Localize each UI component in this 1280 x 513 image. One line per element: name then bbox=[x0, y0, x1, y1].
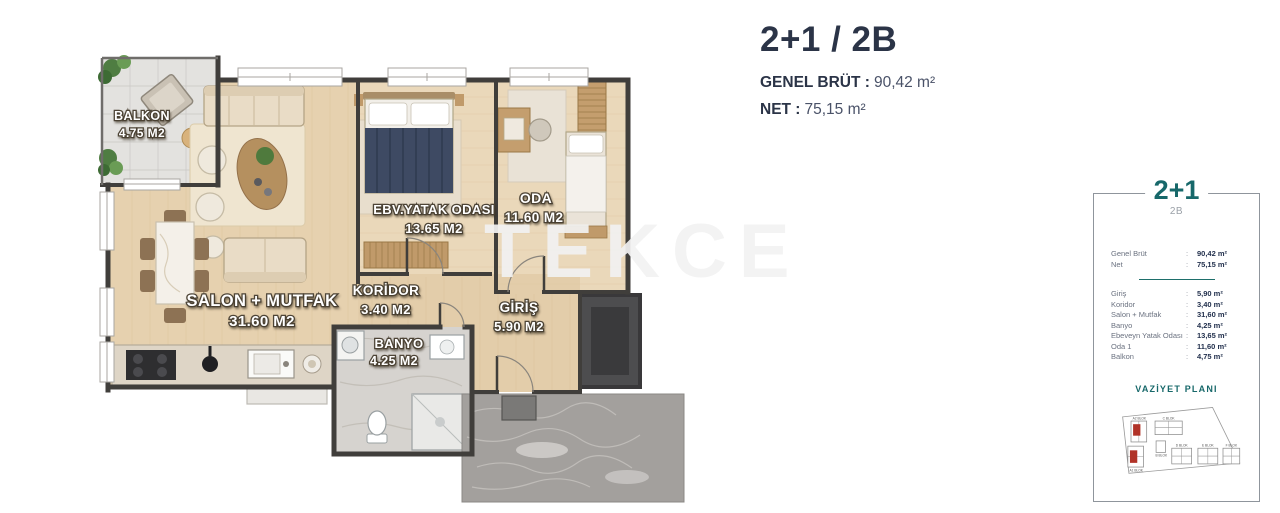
pan bbox=[202, 356, 218, 372]
spec-row: Ebeveyn Yatak Odası:13,65 m² bbox=[1111, 331, 1244, 342]
summary-rows: Genel Brüt:90,42 m² Net:75,15 m² bbox=[1094, 249, 1259, 270]
spec-row: Giriş:5,90 m² bbox=[1111, 289, 1244, 300]
window-icon bbox=[100, 192, 114, 250]
common-hall bbox=[462, 394, 684, 502]
kitchen-ledge bbox=[247, 388, 327, 404]
card-subtitle: 2B bbox=[1094, 206, 1259, 217]
site-plan-title: VAZİYET PLANI bbox=[1094, 384, 1259, 394]
spec-row: Koridor:3,40 m² bbox=[1111, 300, 1244, 311]
block-b bbox=[1156, 440, 1165, 452]
room-area: 3.40 M2 bbox=[361, 302, 411, 317]
spec-row: Net:75,15 m² bbox=[1111, 260, 1244, 271]
toilet bbox=[367, 411, 387, 443]
spec-row: Oda 1:11,60 m² bbox=[1111, 342, 1244, 353]
highlight-unit bbox=[1129, 450, 1136, 463]
plan-header: 2+1 / 2B GENEL BRÜT :90,42 m² NET :75,15… bbox=[760, 18, 935, 119]
unit-summary-card: 2+1 2B Genel Brüt:90,42 m² Net:75,15 m² … bbox=[1093, 193, 1260, 502]
sofa-small bbox=[224, 238, 306, 282]
floor-plan-page: BALKON 4.75 M2 SALON + MUTFAK 31.60 M2 K… bbox=[0, 0, 1280, 513]
room-label: BANYO bbox=[375, 336, 424, 351]
window-icon bbox=[510, 68, 588, 86]
svg-text:E BLOK: E BLOK bbox=[1201, 443, 1214, 447]
room-area: 5.90 M2 bbox=[494, 319, 544, 334]
room-area: 13.65 M2 bbox=[405, 221, 462, 236]
svg-text:D BLOK: D BLOK bbox=[1175, 443, 1188, 447]
net-area-label: NET : bbox=[760, 101, 800, 118]
page-title: 2+1 / 2B bbox=[760, 18, 935, 62]
room-label: ODA bbox=[520, 190, 552, 206]
room-area: 31.60 M2 bbox=[229, 313, 295, 330]
divider bbox=[1139, 279, 1215, 280]
spec-row: Genel Brüt:90,42 m² bbox=[1111, 249, 1244, 260]
spec-row: Banyo:4,25 m² bbox=[1111, 321, 1244, 332]
svg-text:F BLOK: F BLOK bbox=[1225, 443, 1237, 447]
window-icon bbox=[100, 288, 114, 336]
site-plan: A2 BLOK A1 BLOK B BLOK C BLOK D BLOK E B… bbox=[1108, 403, 1246, 483]
svg-text:A2 BLOK: A2 BLOK bbox=[1132, 416, 1146, 420]
room-label: BALKON bbox=[114, 109, 170, 123]
svg-text:B BLOK: B BLOK bbox=[1155, 453, 1168, 457]
bathroom-sink bbox=[430, 335, 464, 359]
window-icon bbox=[388, 68, 466, 86]
svg-text:C BLOK: C BLOK bbox=[1162, 416, 1175, 420]
stove bbox=[126, 350, 176, 380]
kitchen-counter bbox=[112, 345, 334, 385]
room-label: GİRİŞ bbox=[500, 300, 539, 315]
highlight-unit bbox=[1133, 424, 1140, 436]
room-rows: Giriş:5,90 m² Koridor:3,40 m² Salon + Mu… bbox=[1094, 289, 1259, 363]
room-area: 4.25 M2 bbox=[370, 354, 418, 368]
net-area-value: 75,15 m² bbox=[804, 101, 865, 118]
window-icon bbox=[238, 68, 342, 86]
window-icon bbox=[100, 342, 114, 382]
gross-area-label: GENEL BRÜT : bbox=[760, 74, 870, 91]
spec-row: Salon + Mutfak:31,60 m² bbox=[1111, 310, 1244, 321]
wardrobe bbox=[578, 82, 606, 134]
desk-chair bbox=[529, 119, 551, 141]
watermark: TEKCE bbox=[484, 208, 802, 295]
elevator-shaft bbox=[580, 295, 640, 387]
shower bbox=[412, 394, 468, 450]
net-area: NET :75,15 m² bbox=[760, 101, 935, 119]
room-label: SALON + MUTFAK bbox=[187, 292, 338, 310]
spec-row: Balkon:4,75 m² bbox=[1111, 352, 1244, 363]
double-bed bbox=[354, 92, 464, 193]
svg-text:A1 BLOK: A1 BLOK bbox=[1129, 468, 1143, 472]
room-label: EBV.YATAK ODASI bbox=[373, 202, 495, 217]
room-area: 4.75 M2 bbox=[119, 126, 165, 140]
sliding-door bbox=[124, 179, 180, 190]
gross-area-value: 90,42 m² bbox=[874, 74, 935, 91]
gross-area: GENEL BRÜT :90,42 m² bbox=[760, 74, 935, 92]
room-label: KORİDOR bbox=[353, 283, 420, 298]
card-title: 2+1 bbox=[1145, 175, 1209, 205]
